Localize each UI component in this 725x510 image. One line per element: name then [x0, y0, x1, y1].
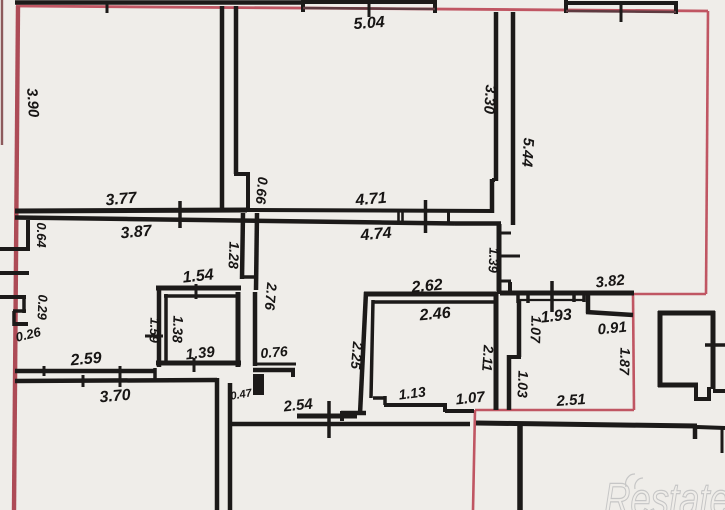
- svg-text:3.77: 3.77: [105, 190, 139, 210]
- svg-text:1.39: 1.39: [185, 343, 216, 363]
- svg-text:1.59: 1.59: [147, 317, 163, 344]
- svg-text:0.91: 0.91: [597, 319, 628, 339]
- svg-text:0.66: 0.66: [253, 176, 271, 205]
- svg-text:4.74: 4.74: [359, 225, 393, 245]
- svg-text:2.11: 2.11: [479, 344, 497, 372]
- svg-text:2.51: 2.51: [555, 391, 586, 410]
- svg-text:1.28: 1.28: [226, 241, 243, 269]
- svg-text:1.13: 1.13: [398, 383, 427, 402]
- svg-text:2.46: 2.46: [418, 305, 452, 325]
- svg-text:3.87: 3.87: [120, 223, 154, 243]
- svg-text:1.03: 1.03: [515, 370, 532, 398]
- svg-text:1.07: 1.07: [455, 388, 486, 408]
- svg-text:5.04: 5.04: [353, 14, 385, 33]
- svg-text:1.39: 1.39: [486, 247, 502, 274]
- svg-text:2.62: 2.62: [410, 277, 444, 297]
- svg-text:1.87: 1.87: [616, 347, 633, 376]
- svg-text:2.25: 2.25: [348, 340, 366, 370]
- svg-text:1.38: 1.38: [170, 315, 187, 343]
- svg-text:4.71: 4.71: [354, 190, 388, 210]
- svg-text:Restate: Restate: [604, 473, 725, 510]
- svg-text:0.29: 0.29: [35, 294, 51, 321]
- svg-text:3.70: 3.70: [99, 387, 132, 407]
- svg-text:1.54: 1.54: [182, 266, 215, 286]
- svg-text:5.44: 5.44: [518, 137, 537, 168]
- svg-text:2.59: 2.59: [69, 350, 103, 370]
- svg-text:3.82: 3.82: [595, 271, 626, 291]
- svg-text:3.30: 3.30: [480, 84, 499, 115]
- svg-text:3.90: 3.90: [23, 88, 42, 119]
- svg-text:1.07: 1.07: [527, 315, 544, 344]
- svg-text:0.64: 0.64: [34, 222, 49, 248]
- svg-text:2.54: 2.54: [282, 395, 314, 415]
- svg-text:0.76: 0.76: [260, 343, 289, 361]
- svg-text:2.76: 2.76: [262, 281, 280, 311]
